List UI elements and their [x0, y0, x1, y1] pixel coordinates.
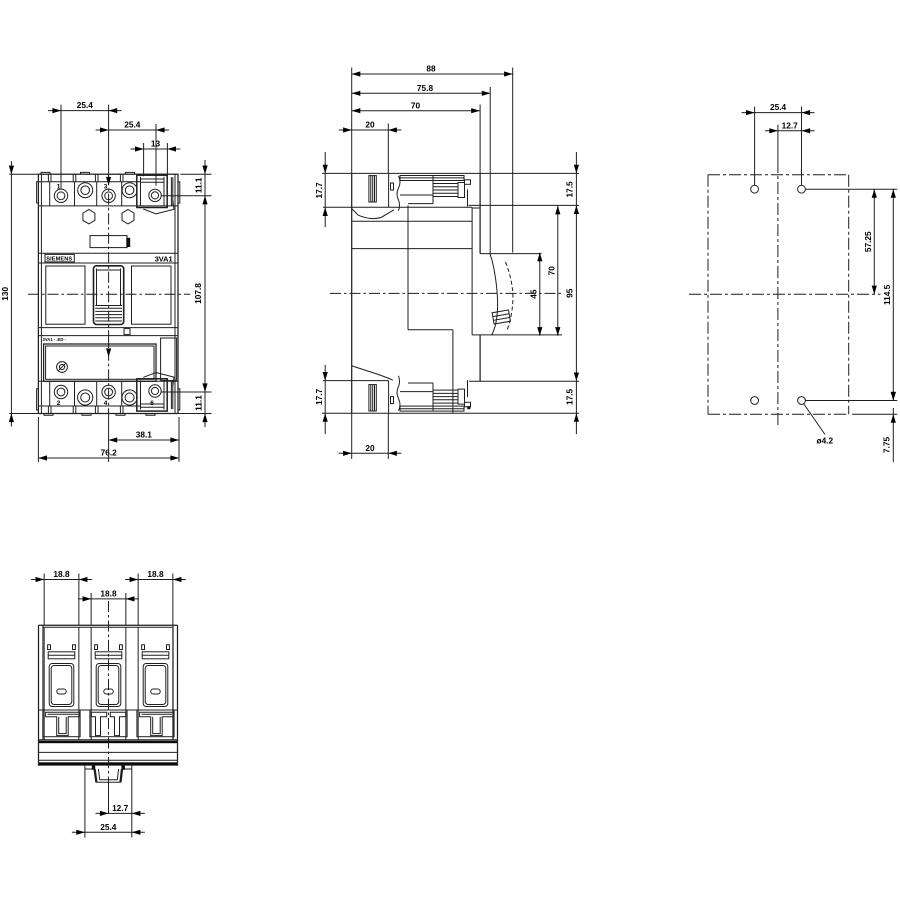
svg-text:3: 3 — [104, 184, 108, 191]
svg-text:75.8: 75.8 — [417, 83, 434, 93]
svg-text:38.1: 38.1 — [136, 430, 153, 440]
svg-text:3VA1: 3VA1 — [155, 255, 173, 264]
svg-text:12.7: 12.7 — [782, 120, 799, 130]
svg-text:4: 4 — [104, 400, 108, 407]
svg-text:25.4: 25.4 — [77, 100, 94, 110]
svg-text:6: 6 — [150, 400, 154, 407]
svg-text:70: 70 — [411, 100, 421, 110]
svg-text:88: 88 — [426, 64, 436, 74]
svg-text:2: 2 — [57, 400, 61, 407]
svg-text:95: 95 — [564, 288, 574, 298]
svg-text:13: 13 — [151, 139, 161, 149]
svg-text:3VA1 - .ED -: 3VA1 - .ED - — [43, 337, 67, 342]
svg-text:17.5: 17.5 — [564, 181, 574, 198]
svg-text:7.75: 7.75 — [881, 437, 891, 454]
svg-text:130: 130 — [0, 287, 10, 301]
svg-text:18.8: 18.8 — [53, 569, 70, 579]
svg-text:114.5: 114.5 — [882, 284, 892, 305]
svg-text:17.7: 17.7 — [314, 388, 324, 405]
svg-text:57.25: 57.25 — [863, 231, 873, 252]
svg-text:17.5: 17.5 — [564, 388, 574, 405]
svg-text:11.1: 11.1 — [194, 177, 204, 193]
svg-text:25.4: 25.4 — [770, 102, 787, 112]
svg-text:70: 70 — [547, 266, 557, 276]
svg-text:SIEMENS: SIEMENS — [46, 257, 72, 263]
svg-text:1: 1 — [57, 184, 61, 191]
svg-text:ø4.2: ø4.2 — [817, 436, 834, 446]
svg-text:20: 20 — [365, 120, 375, 130]
svg-text:20: 20 — [365, 443, 375, 453]
svg-text:45: 45 — [529, 289, 539, 299]
svg-text:17.7: 17.7 — [314, 182, 324, 199]
svg-text:107.8: 107.8 — [193, 283, 203, 304]
svg-text:12.7: 12.7 — [112, 803, 129, 813]
svg-text:18.8: 18.8 — [100, 589, 117, 599]
svg-text:25.4: 25.4 — [100, 822, 117, 832]
svg-text:25.4: 25.4 — [124, 120, 141, 130]
svg-text:18.8: 18.8 — [147, 569, 164, 579]
svg-text:11.1: 11.1 — [194, 395, 204, 411]
